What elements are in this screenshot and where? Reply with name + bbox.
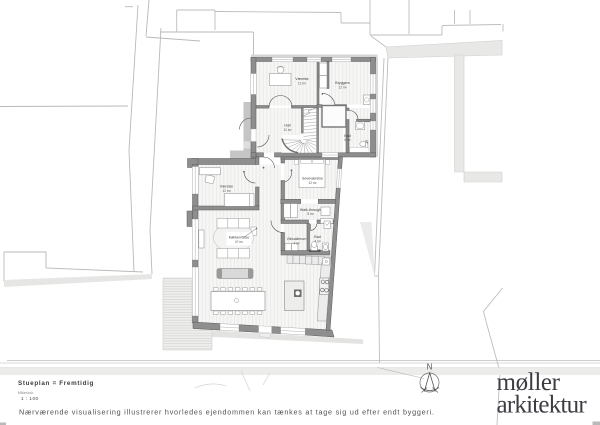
svg-text:Køkken/Stue: Køkken/Stue — [229, 236, 250, 240]
svg-text:Målestok:: Målestok: — [18, 391, 34, 395]
svg-text:N: N — [427, 363, 433, 372]
svg-text:12 m²: 12 m² — [222, 189, 230, 193]
svg-text:11 m²: 11 m² — [284, 128, 292, 132]
svg-text:5 m²: 5 m² — [307, 212, 313, 216]
svg-text:47 m²: 47 m² — [235, 240, 243, 244]
svg-text:6 m²: 6 m² — [344, 138, 350, 142]
svg-text:Værelse: Værelse — [295, 77, 308, 81]
svg-text:1 : 100: 1 : 100 — [21, 396, 39, 401]
svg-text:Stueplan = Fremtidig: Stueplan = Fremtidig — [18, 380, 94, 387]
svg-text:Nærværende visualisering illus: Nærværende visualisering illustrerer hvo… — [19, 408, 435, 417]
svg-text:4 m²: 4 m² — [314, 240, 320, 244]
svg-text:Soveværelse: Soveværelse — [302, 177, 323, 181]
svg-text:Bad: Bad — [314, 235, 320, 239]
svg-text:Hall: Hall — [284, 124, 290, 128]
svg-text:arkitektur: arkitektur — [497, 392, 588, 419]
svg-text:4 m²: 4 m² — [293, 242, 299, 246]
svg-text:12 m²: 12 m² — [308, 181, 316, 185]
svg-text:Bad: Bad — [344, 134, 350, 138]
svg-text:12 m²: 12 m² — [298, 82, 306, 86]
svg-text:Bryggers: Bryggers — [335, 81, 350, 85]
svg-text:Viktualierum: Viktualierum — [287, 237, 307, 241]
svg-text:12 m²: 12 m² — [338, 86, 346, 90]
